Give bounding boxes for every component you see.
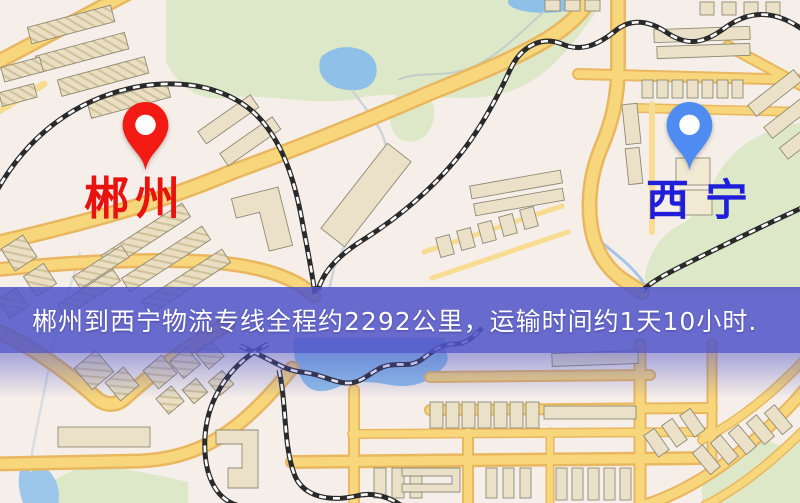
destination-pin[interactable] [662,100,717,174]
map-pin-icon [123,102,169,170]
destination-city-label: 西宁 [646,180,764,223]
map-screenshot: 郴州 西宁 郴州到西宁物流专线全程约2292公里，运输时间约1天10小时. [0,0,800,503]
origin-city-label: 郴州 [84,176,186,221]
map-pin-icon [667,102,713,170]
origin-pin[interactable] [118,100,173,174]
route-info-banner: 郴州到西宁物流专线全程约2292公里，运输时间约1天10小时. [0,287,800,353]
route-info-text: 郴州到西宁物流专线全程约2292公里，运输时间约1天10小时. [0,302,757,338]
map-canvas [0,0,800,503]
